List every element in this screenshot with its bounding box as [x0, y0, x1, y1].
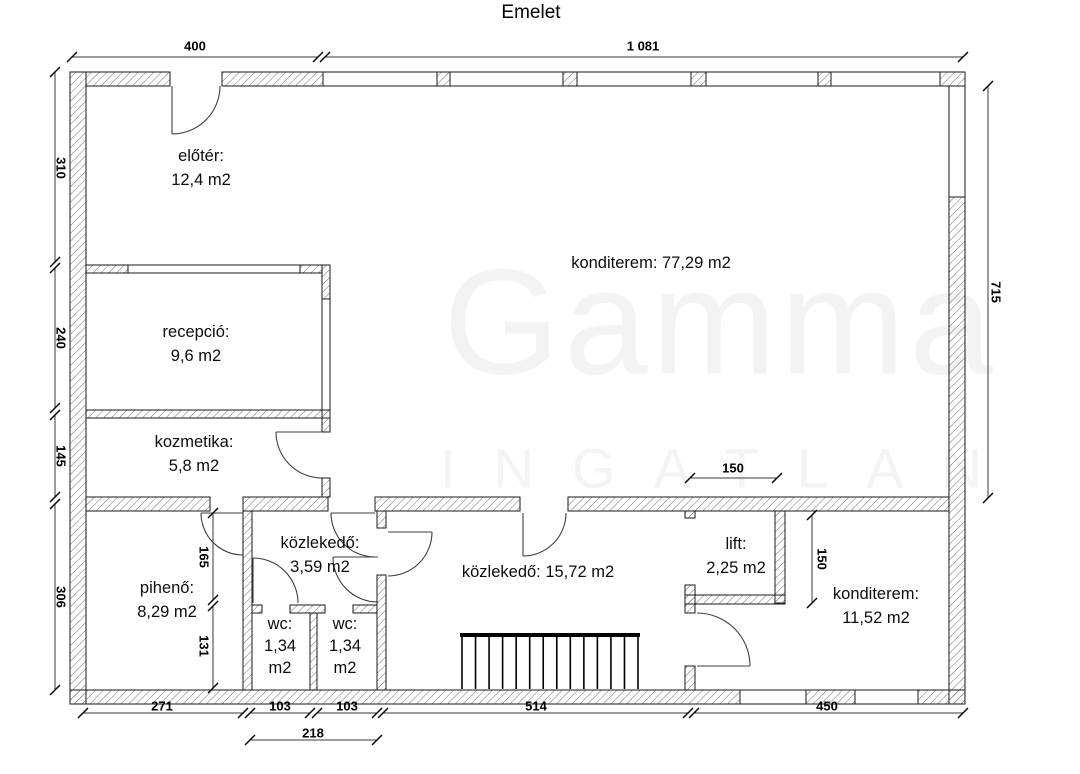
dim-bottom-103b: 103 [336, 699, 358, 714]
dim-inner-165: 165 [197, 546, 212, 568]
room-label-piheno: pihenő:8,29 m2 [137, 576, 197, 624]
floor-plan-canvas: Gamma INGATLAN [0, 0, 1080, 774]
window-right [949, 86, 965, 197]
dim-left-310: 310 [54, 157, 69, 179]
door-kozlekedo-nagy-left [388, 532, 432, 576]
dim-left-145: 145 [54, 445, 69, 467]
dim-left-240: 240 [54, 327, 69, 349]
room-label-kozlekedo-kis: közlekedő:3,59 m2 [281, 531, 360, 579]
window-top-3 [577, 72, 691, 86]
room-label-konditerem-nagy: konditerem: 77,29 m2 [571, 251, 731, 275]
door-kozmetika [276, 432, 322, 478]
dim-bottom-450: 450 [816, 699, 838, 714]
dim-bottom-218: 218 [302, 726, 324, 741]
page-title: Emelet [501, 2, 560, 24]
dim-bottom-103a: 103 [269, 699, 291, 714]
room-label-lift: lift:2,25 m2 [706, 532, 766, 580]
room-label-recepcio: recepció:9,6 m2 [163, 320, 230, 368]
dim-inner-150-v: 150 [815, 548, 830, 570]
door-kozlekedo-nagy-top [523, 513, 566, 556]
room-label-kozlekedo-nagy: közlekedő: 15,72 m2 [462, 560, 614, 584]
window-bottom-2 [855, 690, 918, 704]
dim-top-400: 400 [184, 39, 206, 54]
room-label-konditerem-kis: konditerem:11,52 m2 [833, 582, 919, 630]
window-top-2 [450, 72, 563, 86]
window-top-5 [831, 72, 940, 86]
floor-plan-drawing [0, 0, 1080, 774]
room-label-wc-jobb: wc:1,34m2 [329, 613, 361, 679]
room-label-kozmetika: kozmetika:5,8 m2 [155, 430, 234, 478]
window-bottom-1 [740, 690, 806, 704]
window-top-1 [323, 72, 437, 86]
door-entrance [172, 86, 220, 134]
door-konditerem-kis [697, 613, 750, 666]
window-top-4 [706, 72, 818, 86]
dim-bottom-271: 271 [151, 699, 173, 714]
room-label-wc-bal: wc:1,34m2 [264, 613, 296, 679]
room-label-eloter: előtér:12,4 m2 [171, 144, 231, 192]
dim-inner-150-h: 150 [722, 461, 744, 476]
dim-left-306: 306 [54, 586, 69, 608]
dim-inner-131: 131 [197, 635, 212, 657]
dim-top-1081: 1 081 [627, 39, 660, 54]
dim-bottom-514: 514 [525, 699, 547, 714]
staircase [460, 634, 640, 689]
dim-right-715: 715 [989, 281, 1004, 303]
